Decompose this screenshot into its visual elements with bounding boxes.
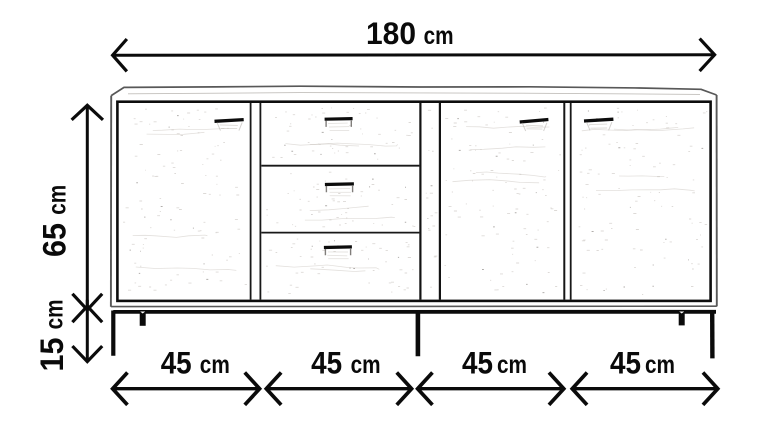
svg-text:65: 65 [37,223,73,257]
svg-text:45: 45 [610,344,641,380]
svg-text:45: 45 [161,344,192,380]
svg-text:cm: cm [497,351,527,379]
svg-text:cm: cm [424,22,454,50]
svg-text:cm: cm [41,299,69,329]
svg-text:180: 180 [366,15,416,51]
svg-text:cm: cm [645,351,675,379]
svg-text:45: 45 [462,344,493,380]
svg-text:cm: cm [351,351,381,379]
svg-text:cm: cm [44,185,72,215]
svg-text:15: 15 [34,338,70,372]
svg-text:45: 45 [311,344,342,380]
svg-text:cm: cm [200,351,230,379]
